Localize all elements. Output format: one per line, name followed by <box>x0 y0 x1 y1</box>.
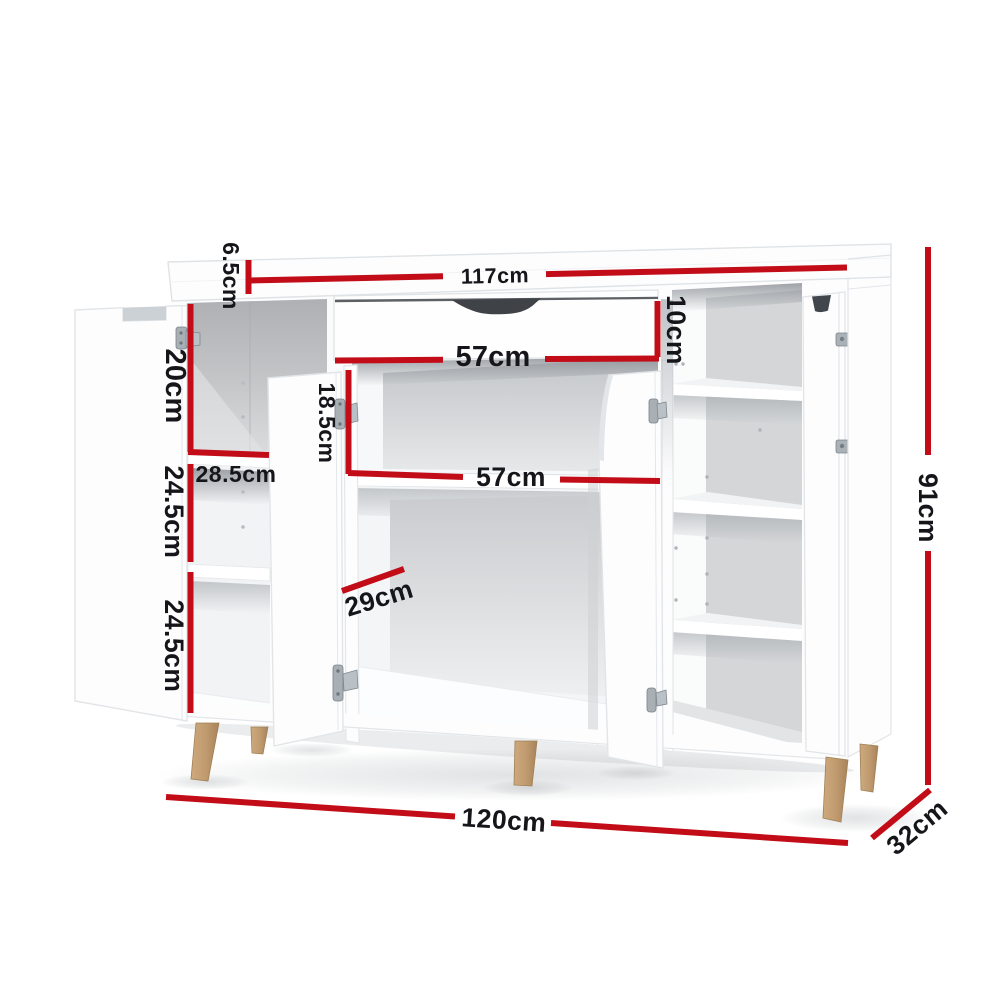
svg-text:117cm: 117cm <box>461 263 530 289</box>
svg-text:10cm: 10cm <box>661 295 691 365</box>
svg-text:91cm: 91cm <box>913 473 943 543</box>
svg-text:24.5cm: 24.5cm <box>159 600 189 693</box>
svg-text:6.5cm: 6.5cm <box>218 242 244 310</box>
svg-text:24.5cm: 24.5cm <box>159 466 189 559</box>
svg-text:57cm: 57cm <box>476 462 546 492</box>
svg-text:120cm: 120cm <box>461 802 548 838</box>
svg-text:28.5cm: 28.5cm <box>195 461 276 487</box>
svg-text:20cm: 20cm <box>159 349 191 424</box>
svg-text:57cm: 57cm <box>456 341 531 373</box>
svg-text:18.5cm: 18.5cm <box>314 382 340 463</box>
